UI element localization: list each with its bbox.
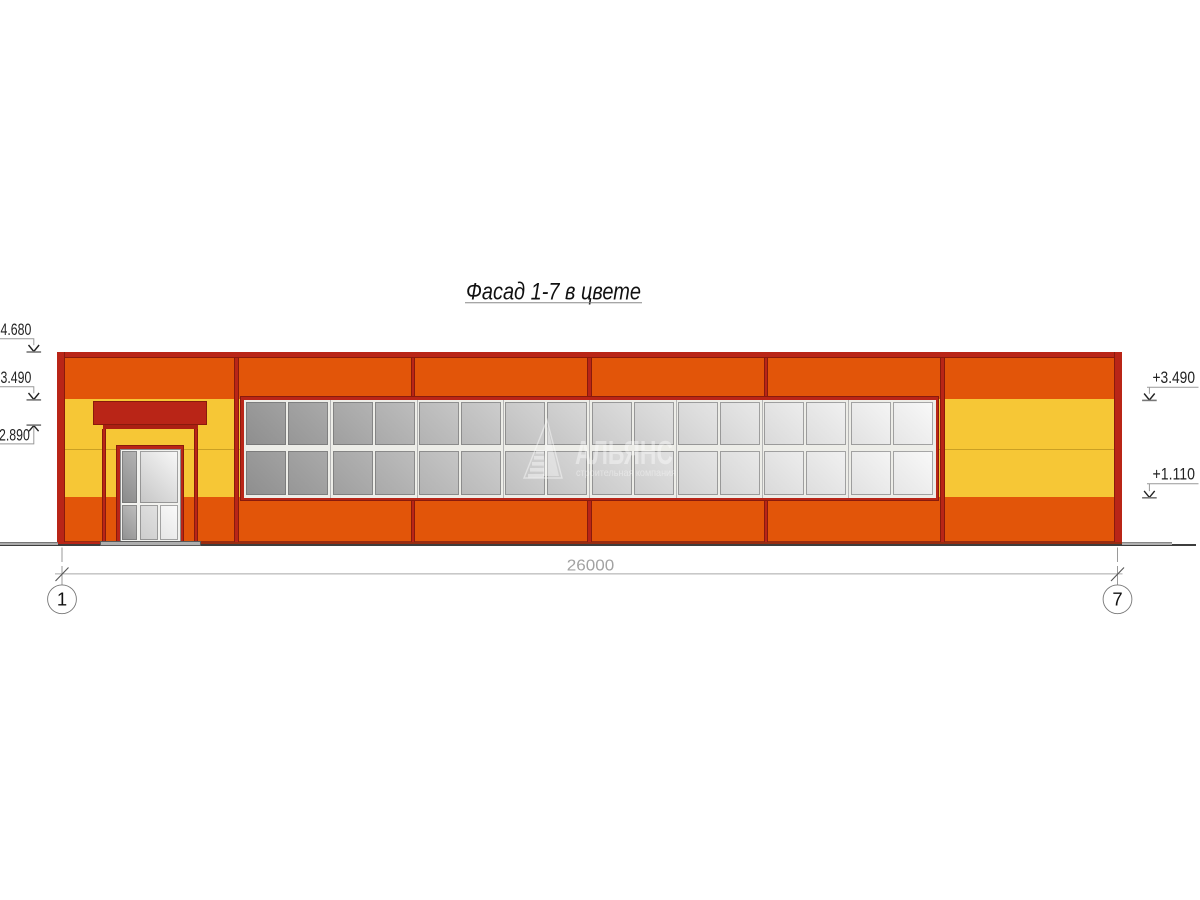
svg-text:+4.680: +4.680 bbox=[0, 321, 31, 339]
svg-text:Фасад 1-7 в цвете: Фасад 1-7 в цвете bbox=[466, 279, 641, 306]
svg-text:+3.490: +3.490 bbox=[1153, 369, 1196, 387]
svg-text:1: 1 bbox=[57, 589, 67, 610]
svg-text:26000: 26000 bbox=[567, 558, 615, 575]
svg-text:7: 7 bbox=[1112, 589, 1122, 610]
svg-text:+3.490: +3.490 bbox=[0, 369, 31, 387]
svg-text:+1.110: +1.110 bbox=[1153, 466, 1196, 484]
svg-text:+2.890: +2.890 bbox=[0, 426, 30, 444]
